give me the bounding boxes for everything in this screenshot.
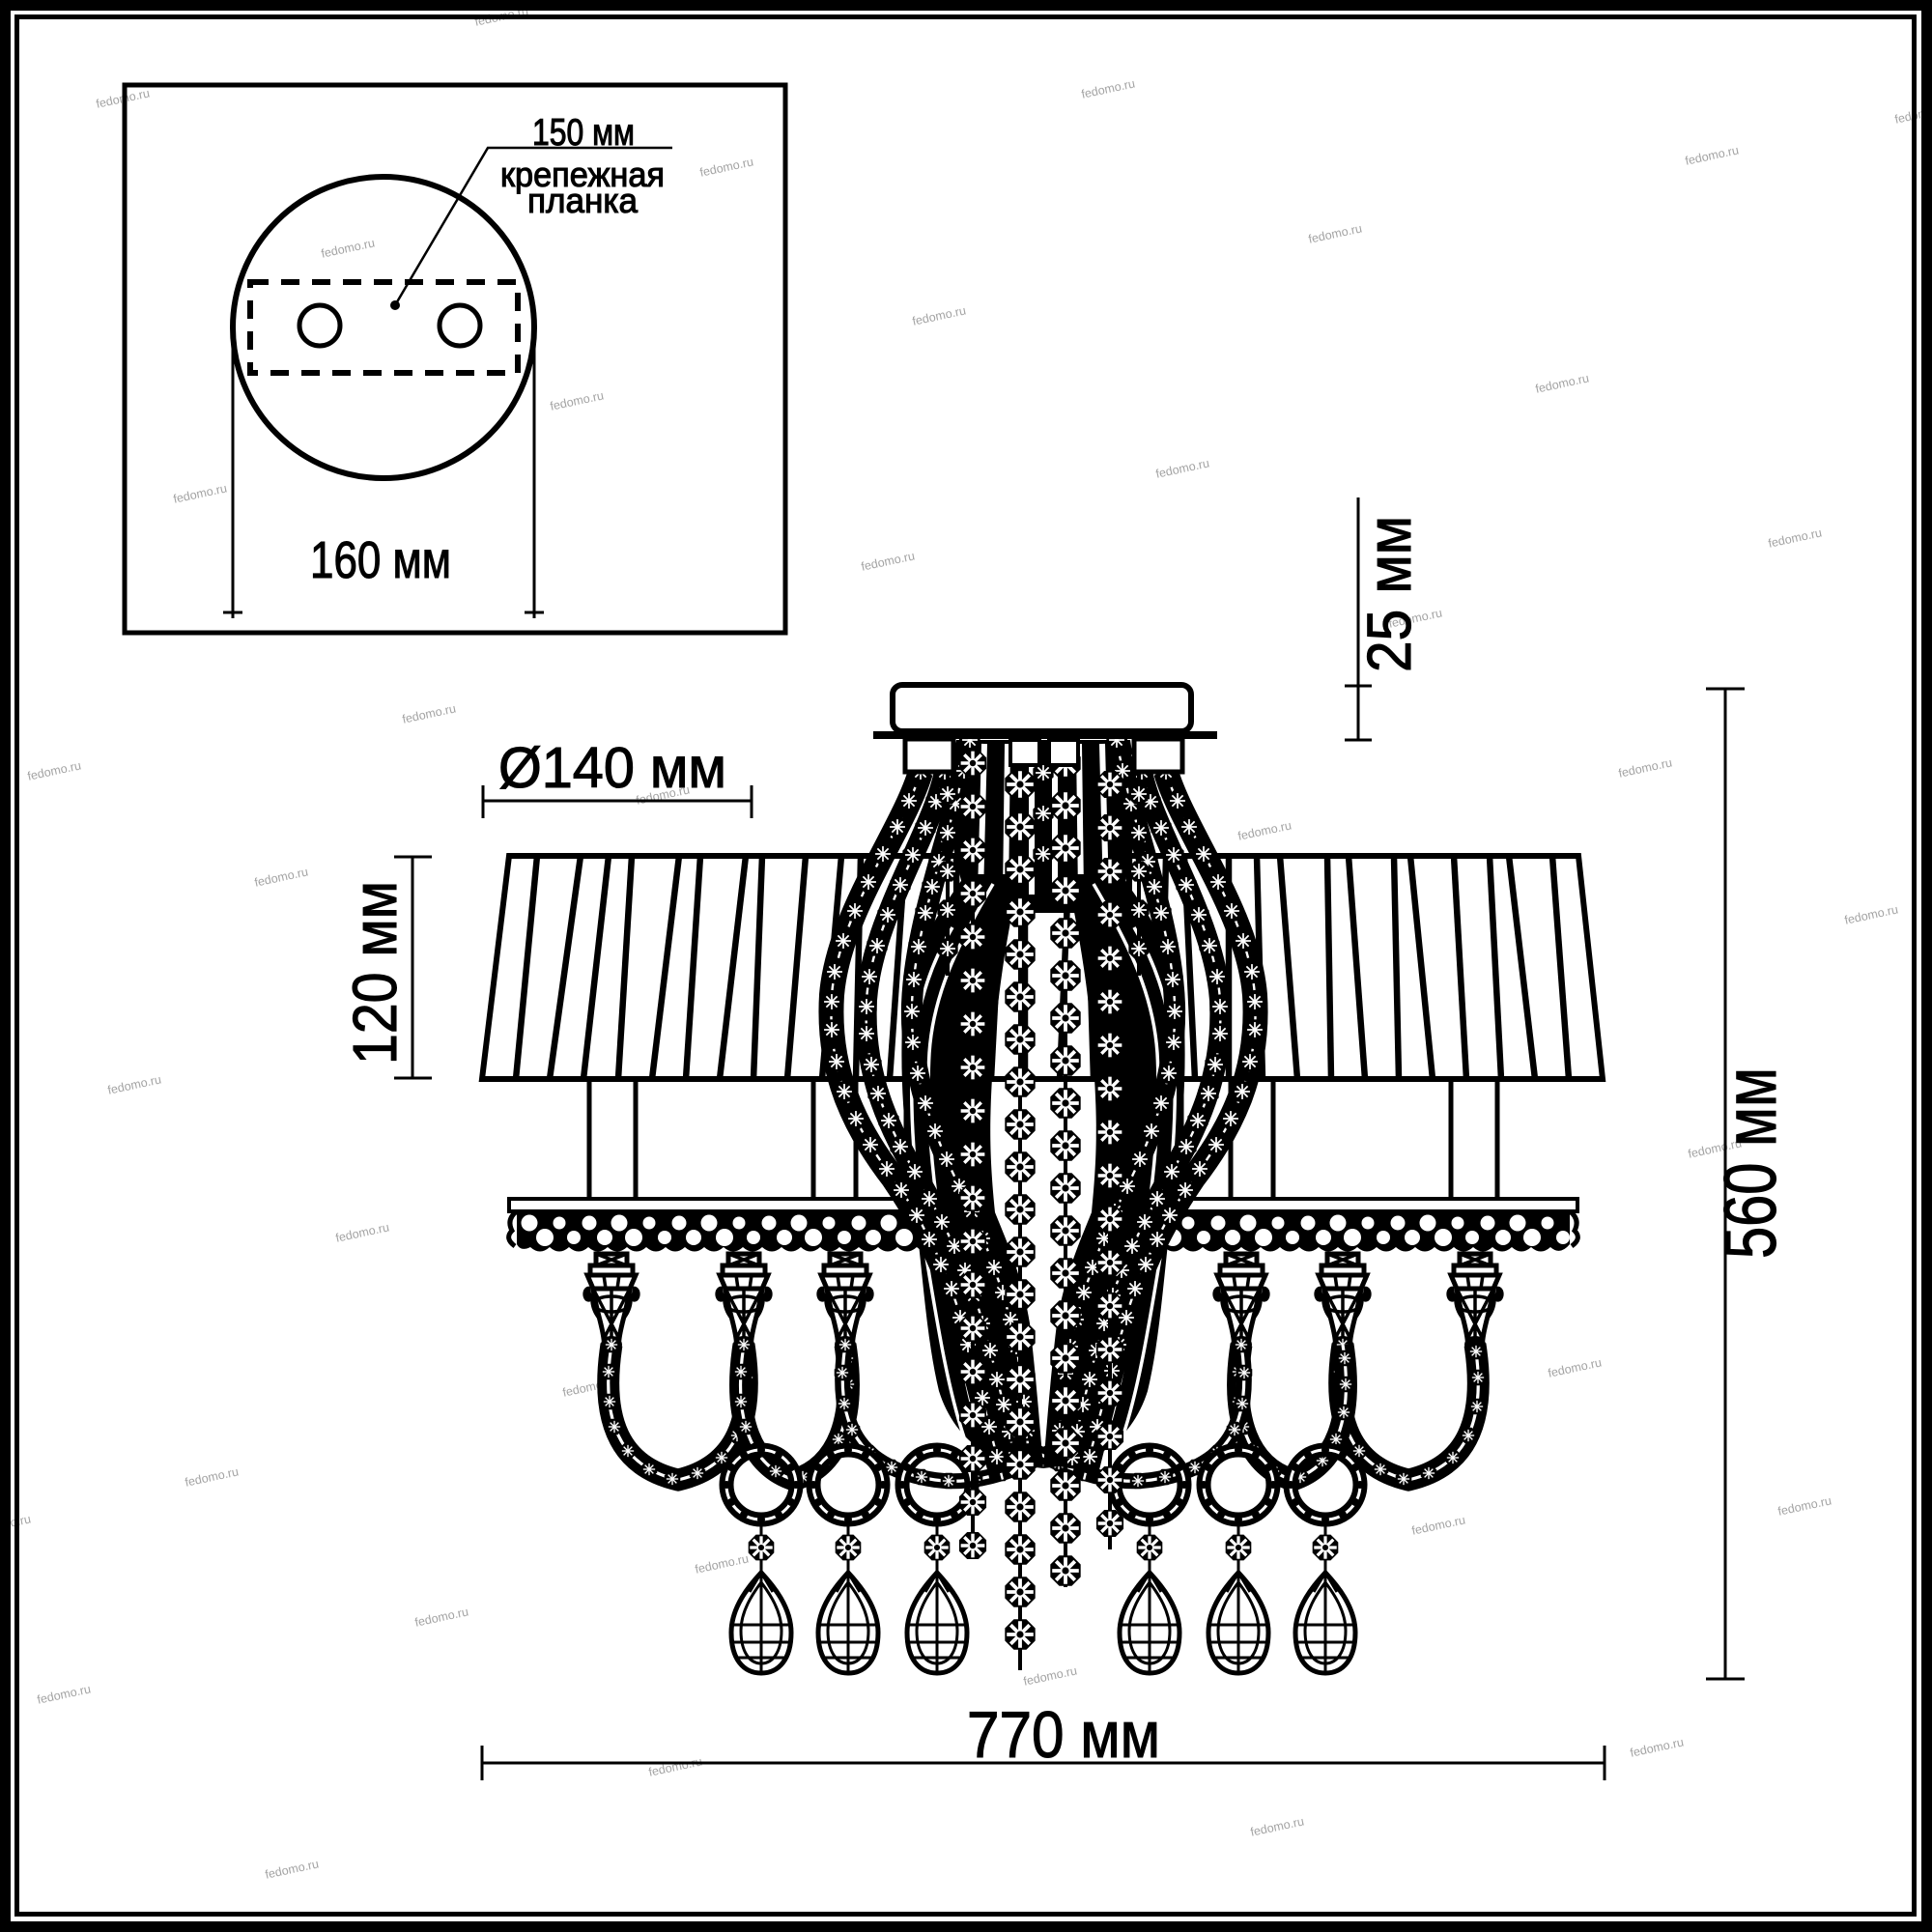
svg-text:Ø140 мм: Ø140 мм: [498, 736, 726, 800]
svg-text:560 мм: 560 мм: [1710, 1067, 1792, 1259]
svg-text:150 мм: 150 мм: [532, 112, 635, 154]
svg-text:770 мм: 770 мм: [967, 1698, 1160, 1772]
svg-text:120 мм: 120 мм: [340, 881, 410, 1065]
svg-text:160 мм: 160 мм: [310, 531, 451, 589]
svg-text:планка: планка: [527, 181, 639, 220]
svg-text:25 мм: 25 мм: [1354, 516, 1424, 672]
